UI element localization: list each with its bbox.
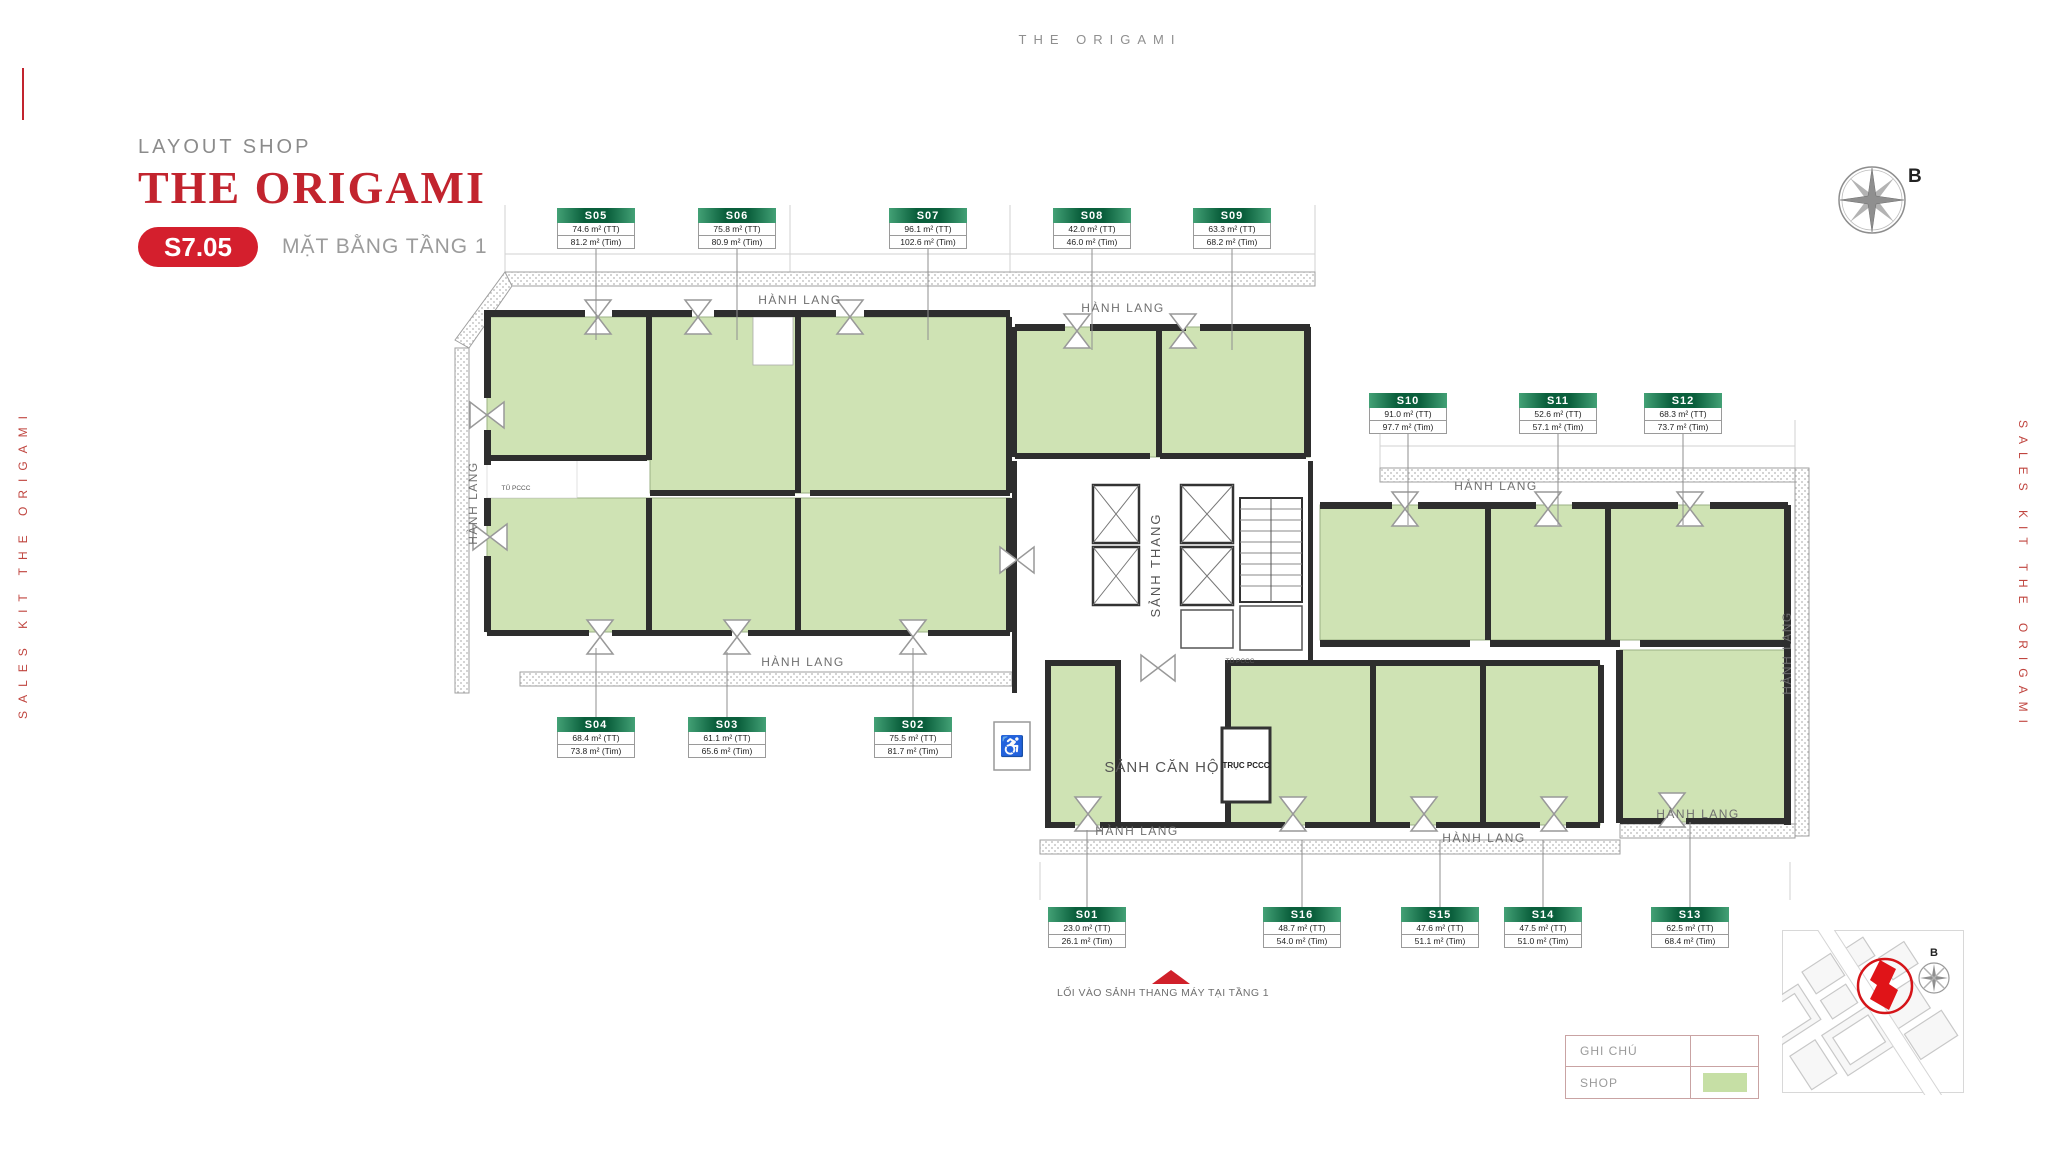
elevator-bank — [1093, 485, 1233, 605]
legend-swatch — [1703, 1073, 1747, 1092]
corridor-label-right-top: HÀNH LANG — [1454, 478, 1538, 493]
corridor-label-bottom-mid-2: HÀNH LANG — [1442, 830, 1526, 845]
legend-title: GHI CHÚ — [1566, 1036, 1691, 1066]
stairs-icon — [1240, 498, 1302, 602]
entrance-note: LỐI VÀO SẢNH THANG MÁY TẠI TẦNG 1 — [1038, 987, 1288, 999]
corridor-label-bottom-right: HÀNH LANG — [1656, 806, 1740, 821]
corridor-label-bottom-mid-1: HÀNH LANG — [1095, 823, 1179, 838]
legend-header-swatch-cell — [1691, 1036, 1758, 1066]
apartment-lobby-label: SẢNH CĂN HỘ — [1104, 759, 1219, 776]
corridor-label-bottom-left: HÀNH LANG — [761, 654, 845, 669]
legend-shop-label: SHOP — [1566, 1067, 1691, 1098]
svg-text:♿: ♿ — [1000, 734, 1025, 758]
entrance-arrow-icon — [1152, 970, 1190, 984]
corridor-label-top-left: HÀNH LANG — [758, 292, 842, 307]
legend-header-row: GHI CHÚ — [1566, 1036, 1758, 1067]
corridor-label-left-vertical: HÀNH LANG — [465, 461, 480, 545]
minimap-north-label: B — [1930, 947, 1938, 959]
page: { "header": { "top_title": "THE ORIGAMI"… — [0, 0, 2048, 1152]
wheelchair-icon: ♿ — [994, 722, 1030, 770]
stair-lobby-label: SẢNH THANG — [1148, 513, 1163, 618]
corridor-label-top-mid: HÀNH LANG — [1081, 300, 1165, 315]
fire-cabinet-notch — [487, 460, 577, 498]
corridor-label-right-vertical: HÀNH LANG — [1779, 611, 1794, 695]
fire-duct-label: TRỤC PCCC — [1222, 761, 1269, 770]
plan-notch — [753, 317, 793, 365]
legend-shop-row: SHOP — [1566, 1067, 1758, 1098]
core-service-rooms — [1181, 606, 1302, 650]
legend-table: GHI CHÚ SHOP — [1565, 1035, 1759, 1099]
fire-cabinet-label-1: TỦ PCCC — [502, 483, 531, 492]
floor-plan: ♿ HÀNH LANG HÀNH LANG HÀNH LANG HÀNH LAN… — [0, 0, 2048, 1152]
site-minimap: B — [1782, 930, 1964, 1095]
fire-cabinet-label-2: TỦ PCCC — [1226, 656, 1255, 665]
